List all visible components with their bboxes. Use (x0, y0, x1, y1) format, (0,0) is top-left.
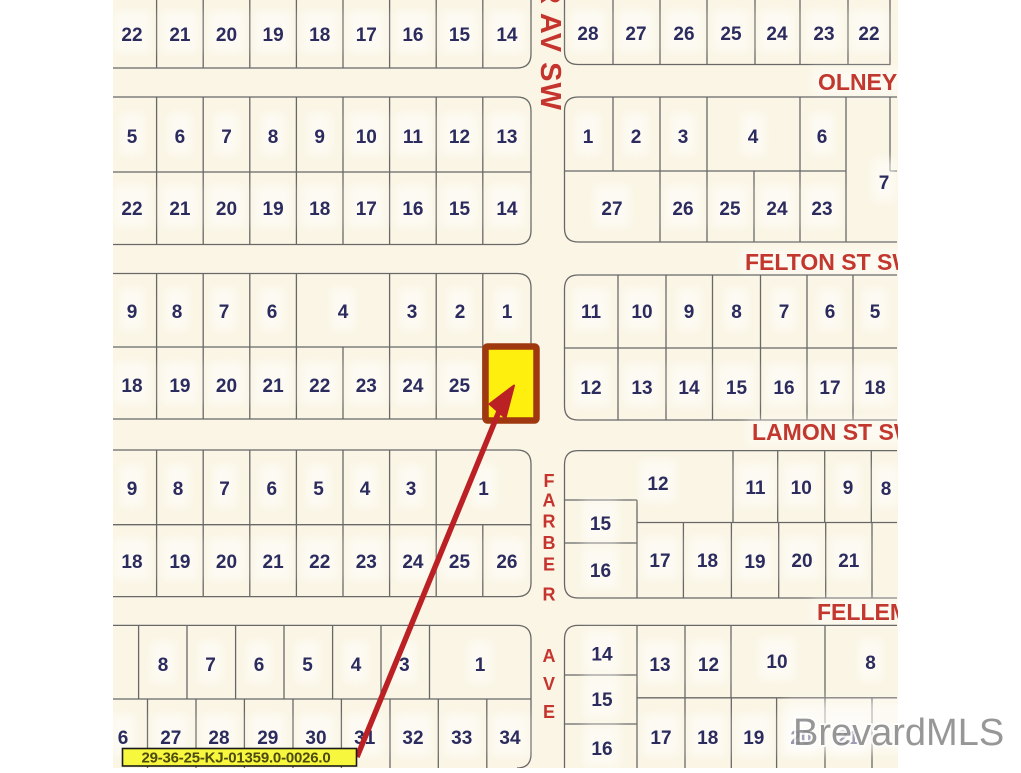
svg-text:7: 7 (219, 479, 230, 500)
svg-text:8: 8 (172, 302, 183, 323)
svg-text:18: 18 (864, 378, 885, 399)
svg-text:17: 17 (650, 728, 671, 749)
svg-text:19: 19 (263, 199, 284, 220)
svg-text:19: 19 (744, 552, 765, 573)
svg-text:23: 23 (811, 199, 832, 220)
svg-text:6: 6 (267, 302, 278, 323)
svg-text:F: F (544, 471, 555, 491)
svg-text:6: 6 (175, 127, 186, 148)
svg-text:R: R (543, 584, 556, 604)
svg-text:12: 12 (698, 655, 719, 676)
svg-text:A: A (543, 490, 556, 510)
svg-text:20: 20 (216, 199, 237, 220)
svg-text:LAMON ST SW: LAMON ST SW (752, 419, 916, 445)
svg-text:26: 26 (672, 199, 693, 220)
svg-text:25: 25 (449, 376, 471, 397)
svg-text:20: 20 (791, 551, 812, 572)
svg-text:10: 10 (766, 652, 787, 673)
svg-text:15: 15 (590, 514, 612, 535)
svg-text:14: 14 (496, 25, 518, 46)
svg-text:22: 22 (309, 552, 330, 573)
svg-text:14: 14 (591, 645, 613, 666)
svg-text:4: 4 (338, 302, 349, 323)
svg-text:18: 18 (309, 199, 330, 220)
svg-text:3: 3 (678, 127, 689, 148)
svg-text:24: 24 (402, 376, 424, 397)
svg-text:9: 9 (684, 302, 695, 323)
svg-text:27: 27 (160, 728, 181, 749)
svg-text:16: 16 (402, 25, 423, 46)
svg-text:20: 20 (216, 25, 237, 46)
svg-text:3: 3 (399, 655, 410, 676)
svg-text:OLNEY: OLNEY (818, 69, 897, 95)
svg-text:34: 34 (499, 728, 521, 749)
svg-text:BrevardMLS: BrevardMLS (793, 712, 1004, 754)
svg-text:19: 19 (743, 728, 764, 749)
svg-text:1: 1 (583, 127, 594, 148)
svg-text:2: 2 (631, 127, 642, 148)
svg-text:33: 33 (451, 728, 472, 749)
svg-text:21: 21 (169, 199, 191, 220)
svg-text:27: 27 (601, 199, 622, 220)
svg-text:29: 29 (257, 728, 278, 749)
svg-text:5: 5 (127, 127, 138, 148)
svg-text:16: 16 (773, 378, 794, 399)
svg-text:8: 8 (881, 479, 892, 500)
svg-text:28: 28 (577, 24, 598, 45)
svg-text:R AV SW: R AV SW (534, 0, 566, 111)
svg-text:13: 13 (649, 655, 670, 676)
svg-text:7: 7 (779, 302, 790, 323)
svg-text:11: 11 (745, 478, 766, 499)
svg-text:23: 23 (356, 552, 377, 573)
svg-text:21: 21 (263, 376, 285, 397)
svg-text:24: 24 (766, 199, 788, 220)
svg-text:23: 23 (356, 376, 377, 397)
svg-text:8: 8 (731, 302, 742, 323)
svg-text:19: 19 (263, 25, 284, 46)
svg-text:18: 18 (697, 728, 718, 749)
svg-text:10: 10 (356, 127, 377, 148)
svg-text:22: 22 (121, 25, 142, 46)
svg-text:6: 6 (254, 655, 265, 676)
svg-text:30: 30 (305, 728, 326, 749)
svg-text:9: 9 (314, 127, 325, 148)
svg-text:7: 7 (879, 173, 890, 194)
svg-text:5: 5 (870, 302, 881, 323)
svg-text:18: 18 (121, 376, 142, 397)
svg-text:32: 32 (402, 728, 423, 749)
svg-text:20: 20 (216, 552, 237, 573)
svg-text:E: E (543, 702, 555, 722)
svg-text:FELTON ST SW: FELTON ST SW (745, 249, 914, 275)
svg-text:26: 26 (496, 552, 517, 573)
svg-text:28: 28 (208, 728, 229, 749)
svg-text:1: 1 (478, 479, 489, 500)
svg-text:16: 16 (590, 561, 611, 582)
svg-text:8: 8 (865, 653, 876, 674)
svg-text:B: B (543, 533, 556, 553)
svg-text:25: 25 (719, 199, 741, 220)
svg-text:7: 7 (205, 655, 216, 676)
svg-text:12: 12 (647, 474, 668, 495)
svg-text:4: 4 (351, 655, 362, 676)
svg-text:5: 5 (313, 479, 324, 500)
svg-text:6: 6 (817, 127, 828, 148)
svg-text:3: 3 (407, 302, 418, 323)
svg-text:21: 21 (838, 551, 860, 572)
svg-text:25: 25 (720, 24, 742, 45)
svg-text:8: 8 (268, 127, 279, 148)
svg-text:27: 27 (625, 24, 646, 45)
svg-text:13: 13 (496, 127, 517, 148)
svg-text:17: 17 (819, 378, 840, 399)
svg-text:3: 3 (406, 479, 417, 500)
svg-text:9: 9 (127, 479, 138, 500)
svg-text:7: 7 (219, 302, 230, 323)
svg-text:21: 21 (169, 25, 191, 46)
svg-text:6: 6 (118, 728, 129, 749)
svg-text:15: 15 (591, 690, 613, 711)
svg-text:15: 15 (449, 199, 471, 220)
svg-text:22: 22 (858, 24, 879, 45)
svg-text:19: 19 (169, 552, 190, 573)
svg-text:12: 12 (580, 378, 601, 399)
svg-text:20: 20 (216, 376, 237, 397)
svg-text:4: 4 (748, 127, 759, 148)
svg-text:11: 11 (403, 127, 424, 148)
svg-text:17: 17 (649, 551, 670, 572)
svg-text:14: 14 (678, 378, 700, 399)
svg-text:6: 6 (267, 479, 278, 500)
svg-text:14: 14 (496, 199, 518, 220)
svg-text:15: 15 (449, 25, 471, 46)
svg-text:R: R (543, 512, 556, 532)
svg-text:10: 10 (791, 478, 812, 499)
svg-text:2: 2 (455, 302, 466, 323)
svg-text:8: 8 (158, 655, 169, 676)
svg-text:8: 8 (173, 479, 184, 500)
svg-text:V: V (543, 674, 555, 694)
svg-text:E: E (543, 554, 555, 574)
svg-text:1: 1 (502, 302, 513, 323)
svg-text:9: 9 (127, 302, 138, 323)
svg-text:26: 26 (673, 24, 694, 45)
svg-text:18: 18 (121, 552, 142, 573)
svg-text:15: 15 (726, 378, 748, 399)
svg-text:19: 19 (169, 376, 190, 397)
svg-text:22: 22 (121, 199, 142, 220)
svg-text:11: 11 (581, 302, 602, 323)
svg-text:A: A (543, 646, 556, 666)
svg-text:18: 18 (697, 551, 718, 572)
svg-text:16: 16 (591, 739, 612, 760)
svg-text:22: 22 (309, 376, 330, 397)
svg-text:1: 1 (475, 655, 486, 676)
svg-text:4: 4 (360, 479, 371, 500)
svg-text:12: 12 (449, 127, 470, 148)
svg-text:13: 13 (631, 378, 652, 399)
svg-text:9: 9 (843, 478, 854, 499)
svg-text:16: 16 (402, 199, 423, 220)
svg-text:7: 7 (221, 127, 232, 148)
svg-text:6: 6 (825, 302, 836, 323)
svg-text:25: 25 (449, 552, 471, 573)
svg-text:23: 23 (813, 24, 834, 45)
svg-text:24: 24 (766, 24, 788, 45)
svg-text:18: 18 (309, 25, 330, 46)
svg-text:10: 10 (631, 302, 652, 323)
svg-text:17: 17 (356, 25, 377, 46)
svg-text:21: 21 (263, 552, 285, 573)
svg-text:17: 17 (356, 199, 377, 220)
svg-text:24: 24 (402, 552, 424, 573)
svg-text:5: 5 (302, 655, 313, 676)
svg-text:29-36-25-KJ-01359.0-0026.0: 29-36-25-KJ-01359.0-0026.0 (141, 750, 330, 767)
